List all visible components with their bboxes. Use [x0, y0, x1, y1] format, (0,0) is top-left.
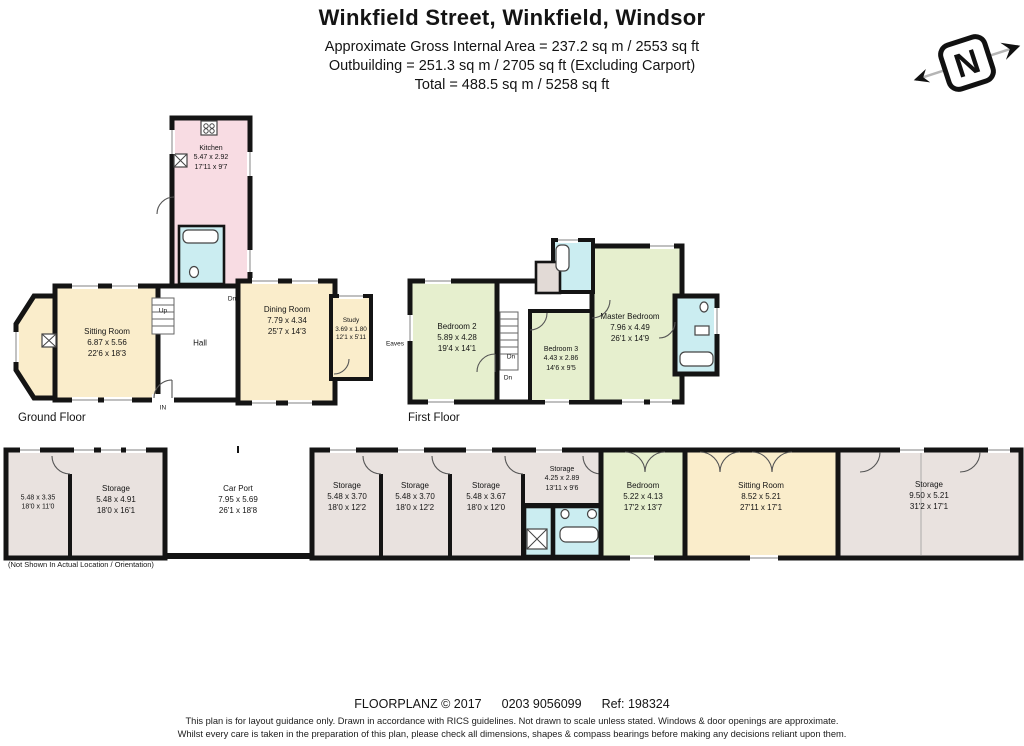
room-name: Bedroom 2	[437, 322, 477, 333]
room-metric: 9.50 x 5.21	[909, 491, 949, 502]
bath-icon	[183, 230, 218, 243]
room-name: Bedroom	[623, 481, 663, 492]
up-marker: Up	[159, 308, 167, 315]
dn-marker: Dn	[504, 375, 512, 382]
gf-hall-label: Hall	[193, 339, 207, 350]
first-floor-title: First Floor	[408, 412, 460, 424]
ob-storage6-label: Storage 9.50 x 5.21 31'2 x 17'1	[909, 480, 949, 512]
room-name: Hall	[193, 339, 207, 350]
room-name: Master Bedroom	[600, 312, 659, 323]
room-imperial: 13'11 x 9'6	[545, 484, 580, 493]
room-name: Storage	[395, 481, 435, 492]
dn-marker: Dn	[507, 354, 515, 361]
room-metric: 7.96 x 4.49	[600, 323, 659, 334]
room-imperial: 22'6 x 18'3	[84, 348, 130, 359]
toilet-icon	[561, 510, 569, 519]
room-name: Sitting Room	[738, 481, 784, 492]
outbuilding-note: (Not Shown In Actual Location / Orientat…	[8, 560, 154, 569]
room-imperial: 18'0 x 12'2	[395, 502, 435, 513]
ground-floor-title: Ground Floor	[18, 412, 86, 424]
bath-icon	[680, 352, 713, 366]
dn-marker: Dn	[228, 296, 236, 303]
stairs-icon	[500, 312, 518, 370]
bath-icon	[560, 527, 598, 542]
room-imperial: 18'0 x 16'1	[96, 505, 136, 516]
room-imperial: 18'0 x 11'0	[21, 503, 56, 512]
floorplan-page: N Winkfield Street, Winkfield, Windsor A…	[0, 0, 1024, 746]
room-metric: 5.89 x 4.28	[437, 333, 477, 344]
room-metric: 7.79 x 4.34	[264, 316, 310, 327]
gross-internal-area-line: Approximate Gross Internal Area = 237.2 …	[0, 39, 1024, 55]
room-imperial: 12'1 x 5'11	[335, 334, 367, 343]
room-name: Kitchen	[194, 144, 229, 153]
ob-storage1-label: Storage 5.48 x 4.91 18'0 x 16'1	[96, 484, 136, 516]
room-metric: 5.48 x 4.91	[96, 495, 136, 506]
room-metric: 4.25 x 2.89	[545, 474, 580, 483]
ob-storage2-label: Storage 5.48 x 3.70 18'0 x 12'2	[327, 481, 367, 513]
room-imperial: 14'6 x 9'5	[544, 364, 579, 373]
room-imperial: 25'7 x 14'3	[264, 326, 310, 337]
footer-brand-line: FLOORPLANZ © 2017 0203 9056099 Ref: 1983…	[0, 697, 1024, 711]
room-name: Sitting Room	[84, 327, 130, 338]
footer-disclaimer-1: This plan is for layout guidance only. D…	[0, 716, 1024, 726]
toilet-icon	[700, 302, 708, 312]
room-metric: 5.22 x 4.13	[623, 492, 663, 503]
room-imperial: 18'0 x 12'0	[466, 502, 506, 513]
room-imperial: 17'11 x 9'7	[194, 163, 229, 172]
gf-kitchen-label: Kitchen 5.47 x 2.92 17'11 x 9'7	[194, 144, 229, 172]
ff-master-bedroom-label: Master Bedroom 7.96 x 4.49 26'1 x 14'9	[600, 312, 659, 344]
bath-icon	[556, 245, 569, 271]
room-metric: 5.48 x 3.70	[395, 492, 435, 503]
room-metric: 5.48 x 3.67	[466, 492, 506, 503]
room-metric: 4.43 x 2.86	[544, 354, 579, 363]
footer-disclaimer-2: Whilst every care is taken in the prepar…	[0, 729, 1024, 739]
room-metric: 8.52 x 5.21	[738, 492, 784, 503]
stairs-icon	[152, 298, 174, 334]
room-name: Bedroom 3	[544, 345, 579, 354]
room-imperial: 26'1 x 14'9	[600, 333, 659, 344]
room-metric: 6.87 x 5.56	[84, 338, 130, 349]
sink-icon	[695, 326, 709, 335]
gf-sitting-room-label: Sitting Room 6.87 x 5.56 22'6 x 18'3	[84, 327, 130, 359]
room-metric: 5.48 x 3.35	[21, 494, 56, 503]
ff-bedroom2-label: Bedroom 2 5.89 x 4.28 19'4 x 14'1	[437, 322, 477, 354]
footer-ref: Ref: 198324	[602, 697, 670, 711]
ff-bedroom3-label: Bedroom 3 4.43 x 2.86 14'6 x 9'5	[544, 345, 579, 373]
ob-storage5-label: Storage 4.25 x 2.89 13'11 x 9'6	[545, 465, 580, 493]
floorplan-drawing: N	[0, 0, 1024, 746]
room-metric: 5.48 x 3.70	[327, 492, 367, 503]
ob-room1-label: 5.48 x 3.35 18'0 x 11'0	[21, 494, 56, 513]
room-name: Storage	[545, 465, 580, 474]
ob-carport-label: Car Port 7.95 x 5.69 26'1 x 18'8	[218, 484, 258, 516]
page-title: Winkfield Street, Winkfield, Windsor	[0, 5, 1024, 31]
ob-sitting-room-label: Sitting Room 8.52 x 5.21 27'11 x 17'1	[738, 481, 784, 513]
outbuilding-area-line: Outbuilding = 251.3 sq m / 2705 sq ft (E…	[0, 58, 1024, 74]
room-name: Study	[335, 317, 367, 326]
room-imperial: 31'2 x 17'1	[909, 501, 949, 512]
room-imperial: 26'1 x 18'8	[218, 505, 258, 516]
ob-storage3-label: Storage 5.48 x 3.70 18'0 x 12'2	[395, 481, 435, 513]
room-name: Storage	[327, 481, 367, 492]
room-name: Car Port	[218, 484, 258, 495]
gf-study-label: Study 3.69 x 1.80 12'1 x 5'11	[335, 317, 367, 343]
footer-brand: FLOORPLANZ © 2017	[354, 697, 481, 711]
gf-dining-room-label: Dining Room 7.79 x 4.34 25'7 x 14'3	[264, 305, 310, 337]
total-area-line: Total = 488.5 sq m / 5258 sq ft	[0, 77, 1024, 93]
gf-dining-room	[238, 281, 335, 403]
room-imperial: 17'2 x 13'7	[623, 502, 663, 513]
ob-bedroom-label: Bedroom 5.22 x 4.13 17'2 x 13'7	[623, 481, 663, 513]
room-imperial: 19'4 x 14'1	[437, 343, 477, 354]
in-marker: IN	[160, 405, 167, 412]
room-imperial: 27'11 x 17'1	[738, 502, 784, 513]
toilet-icon	[190, 267, 199, 278]
room-name: Dining Room	[264, 305, 310, 316]
outbuilding-plan	[6, 446, 1021, 558]
room-imperial: 18'0 x 12'2	[327, 502, 367, 513]
room-metric: 5.47 x 2.92	[194, 153, 229, 162]
room-metric: 7.95 x 5.69	[218, 495, 258, 506]
room-name: Storage	[96, 484, 136, 495]
eaves-marker: Eaves	[386, 341, 404, 348]
hob-icon	[201, 121, 217, 135]
room-name: Storage	[466, 481, 506, 492]
footer-phone: 0203 9056099	[502, 697, 582, 711]
room-name: Storage	[909, 480, 949, 491]
ob-storage4-label: Storage 5.48 x 3.67 18'0 x 12'0	[466, 481, 506, 513]
room-metric: 3.69 x 1.80	[335, 326, 367, 335]
sink-icon	[588, 510, 597, 519]
